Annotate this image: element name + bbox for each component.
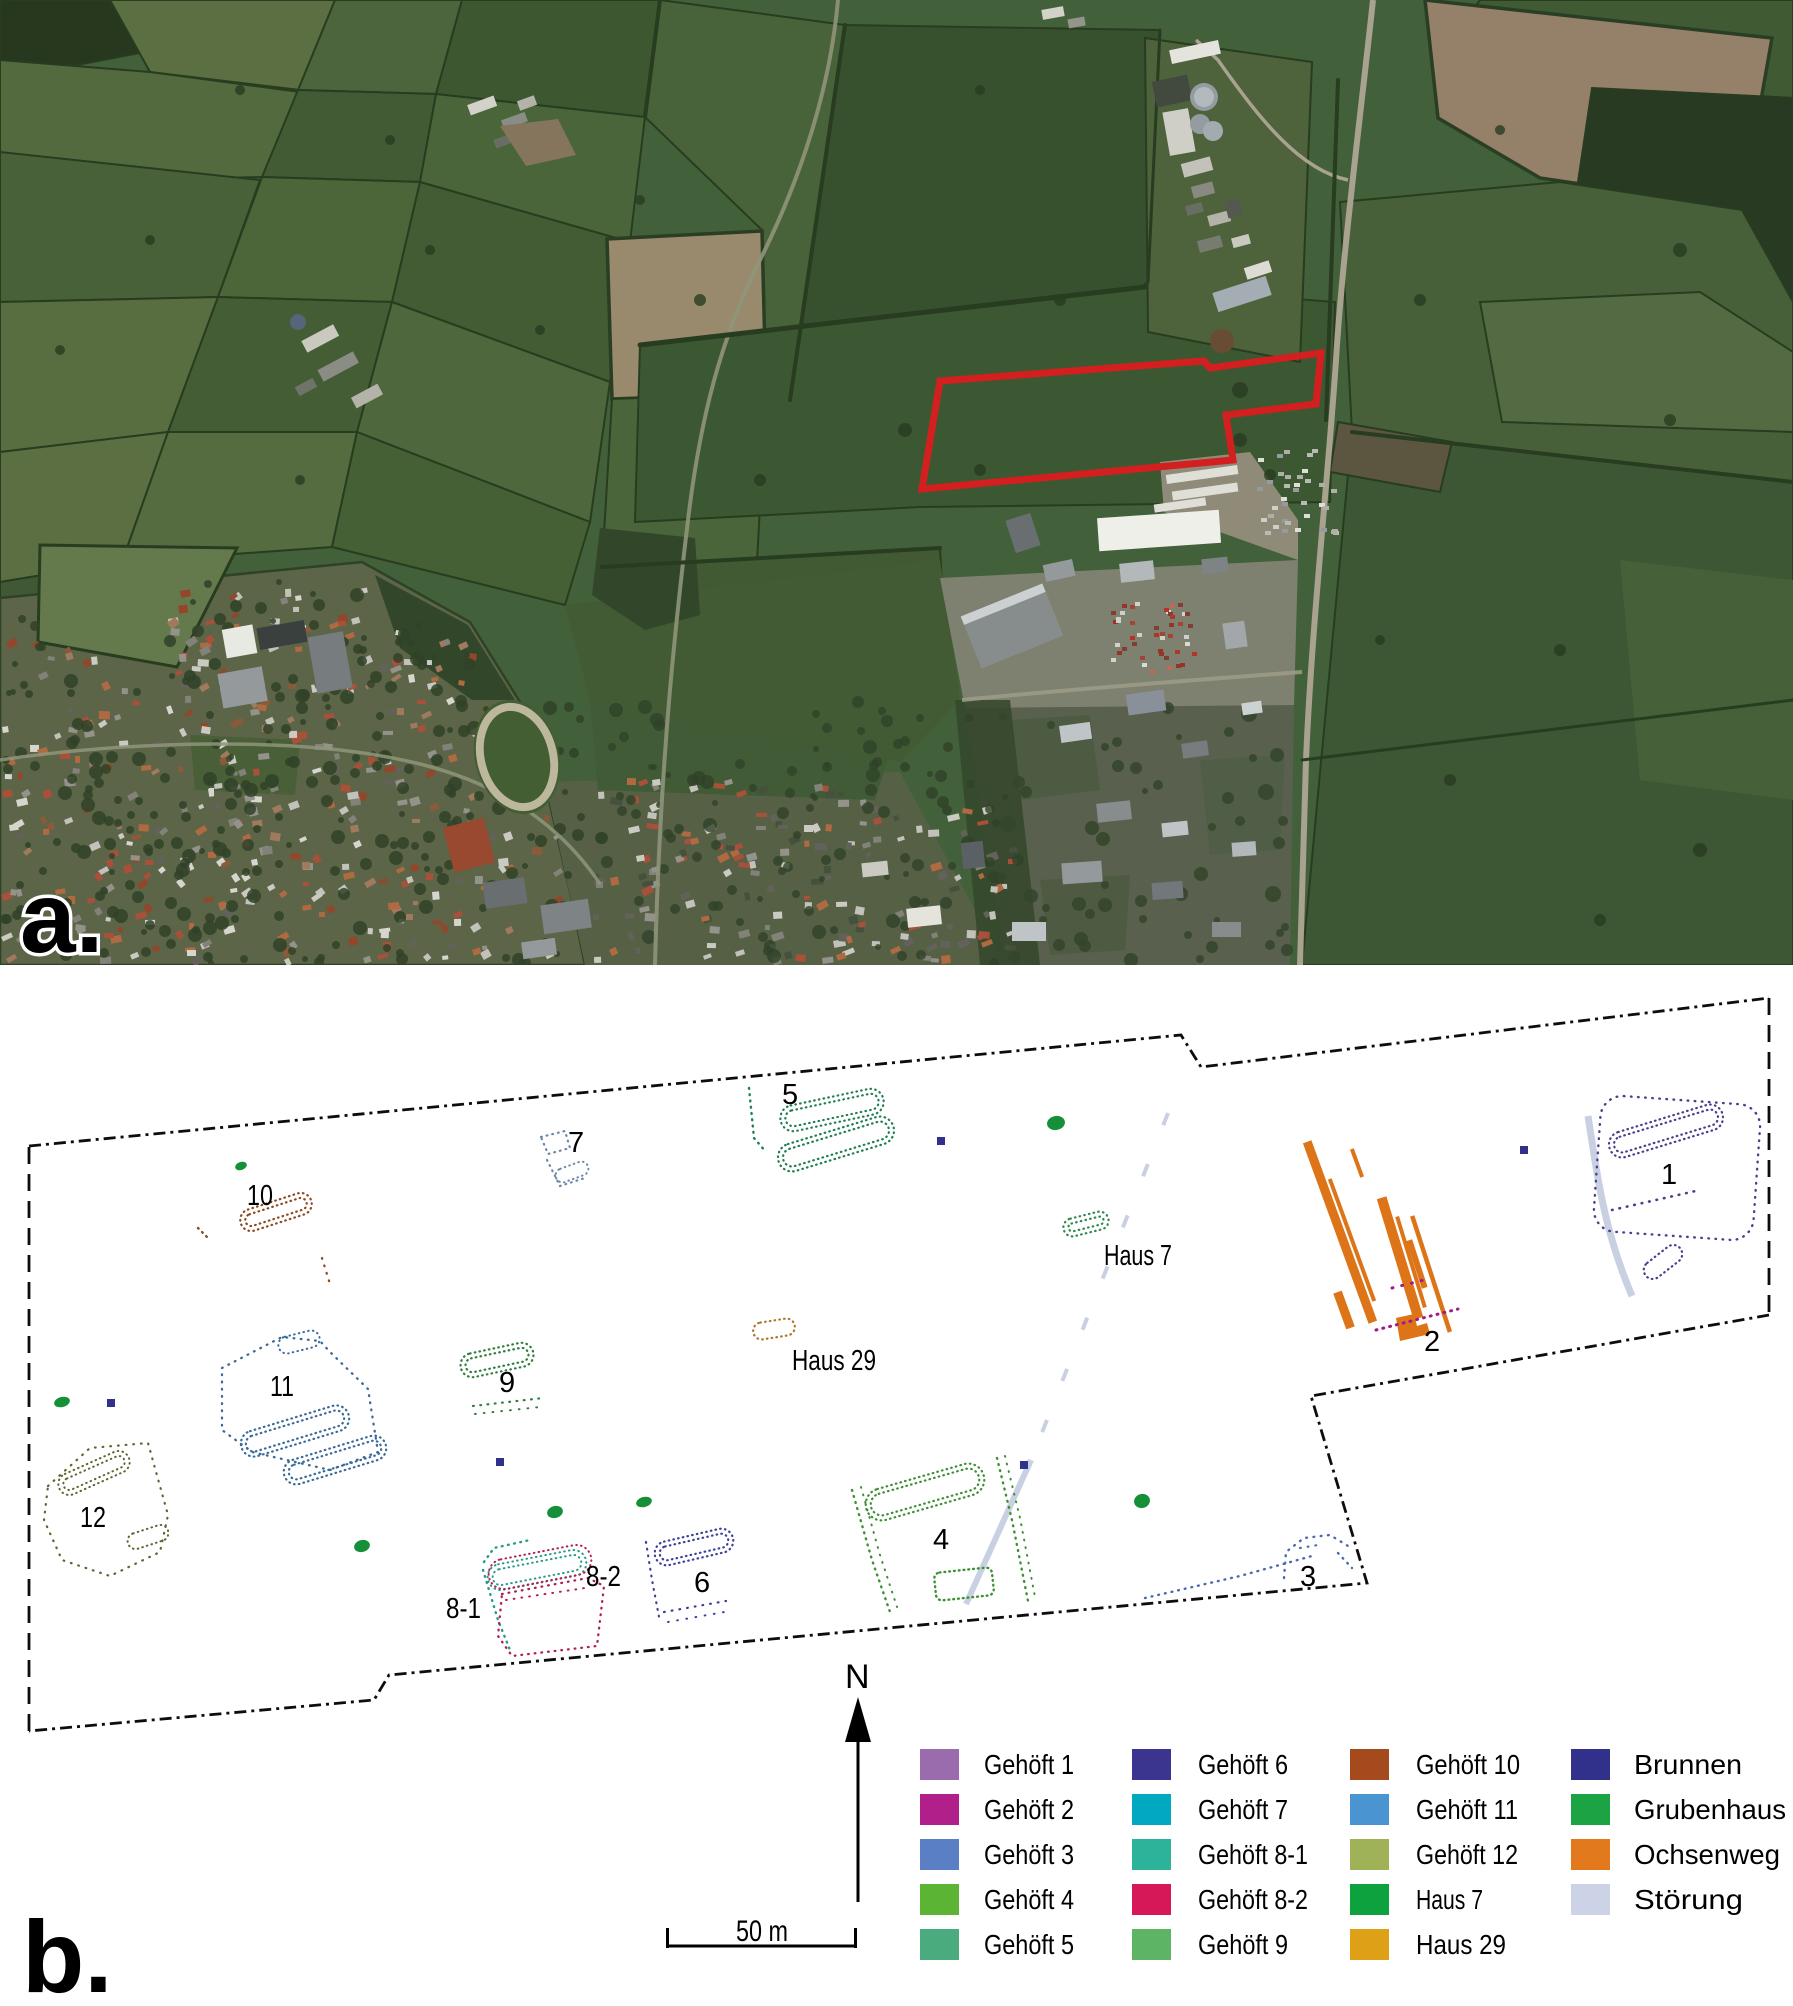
svg-text:8-1: 8-1	[446, 1593, 481, 1625]
svg-text:8-2: 8-2	[586, 1561, 621, 1593]
svg-text:Brunnen: Brunnen	[1634, 1749, 1742, 1780]
svg-text:Gehöft 1: Gehöft 1	[984, 1749, 1074, 1780]
svg-text:Gehöft 10: Gehöft 10	[1416, 1749, 1520, 1780]
svg-text:50 m: 50 m	[736, 1915, 788, 1948]
svg-text:Gehöft 9: Gehöft 9	[1198, 1929, 1288, 1960]
svg-text:5: 5	[782, 1079, 798, 1111]
svg-text:2: 2	[1424, 1326, 1440, 1358]
svg-text:Ochsenweg: Ochsenweg	[1634, 1839, 1780, 1870]
svg-text:10: 10	[247, 1180, 273, 1212]
svg-text:Gehöft 2: Gehöft 2	[984, 1794, 1074, 1825]
svg-text:b.: b.	[22, 1900, 113, 2006]
svg-text:4: 4	[933, 1524, 949, 1556]
svg-text:Haus 7: Haus 7	[1104, 1240, 1172, 1272]
svg-text:Gehöft 8-1: Gehöft 8-1	[1198, 1839, 1308, 1870]
svg-text:Gehöft 7: Gehöft 7	[1198, 1794, 1288, 1825]
svg-text:Gehöft 6: Gehöft 6	[1198, 1749, 1288, 1780]
svg-text:3: 3	[1300, 1561, 1316, 1593]
svg-text:Gehöft 3: Gehöft 3	[984, 1839, 1074, 1870]
svg-text:Haus 29: Haus 29	[792, 1345, 876, 1377]
svg-text:a.: a.	[20, 862, 103, 974]
svg-text:1: 1	[1661, 1159, 1677, 1191]
svg-text:7: 7	[568, 1127, 584, 1159]
svg-text:12: 12	[80, 1502, 106, 1534]
svg-text:Störung: Störung	[1634, 1884, 1743, 1915]
svg-text:Haus 29: Haus 29	[1416, 1929, 1506, 1960]
svg-text:Gehöft 8-2: Gehöft 8-2	[1198, 1884, 1308, 1915]
svg-text:N: N	[845, 1658, 870, 1696]
svg-text:9: 9	[499, 1367, 515, 1399]
svg-text:11: 11	[270, 1371, 294, 1403]
svg-text:Gehöft 5: Gehöft 5	[984, 1929, 1074, 1960]
svg-text:Gehöft 4: Gehöft 4	[984, 1884, 1074, 1915]
svg-text:Haus 7: Haus 7	[1416, 1884, 1483, 1915]
svg-text:Gehöft 11: Gehöft 11	[1416, 1794, 1518, 1825]
svg-text:6: 6	[694, 1567, 710, 1599]
svg-text:Gehöft 12: Gehöft 12	[1416, 1839, 1518, 1870]
svg-text:Grubenhaus: Grubenhaus	[1634, 1794, 1786, 1825]
